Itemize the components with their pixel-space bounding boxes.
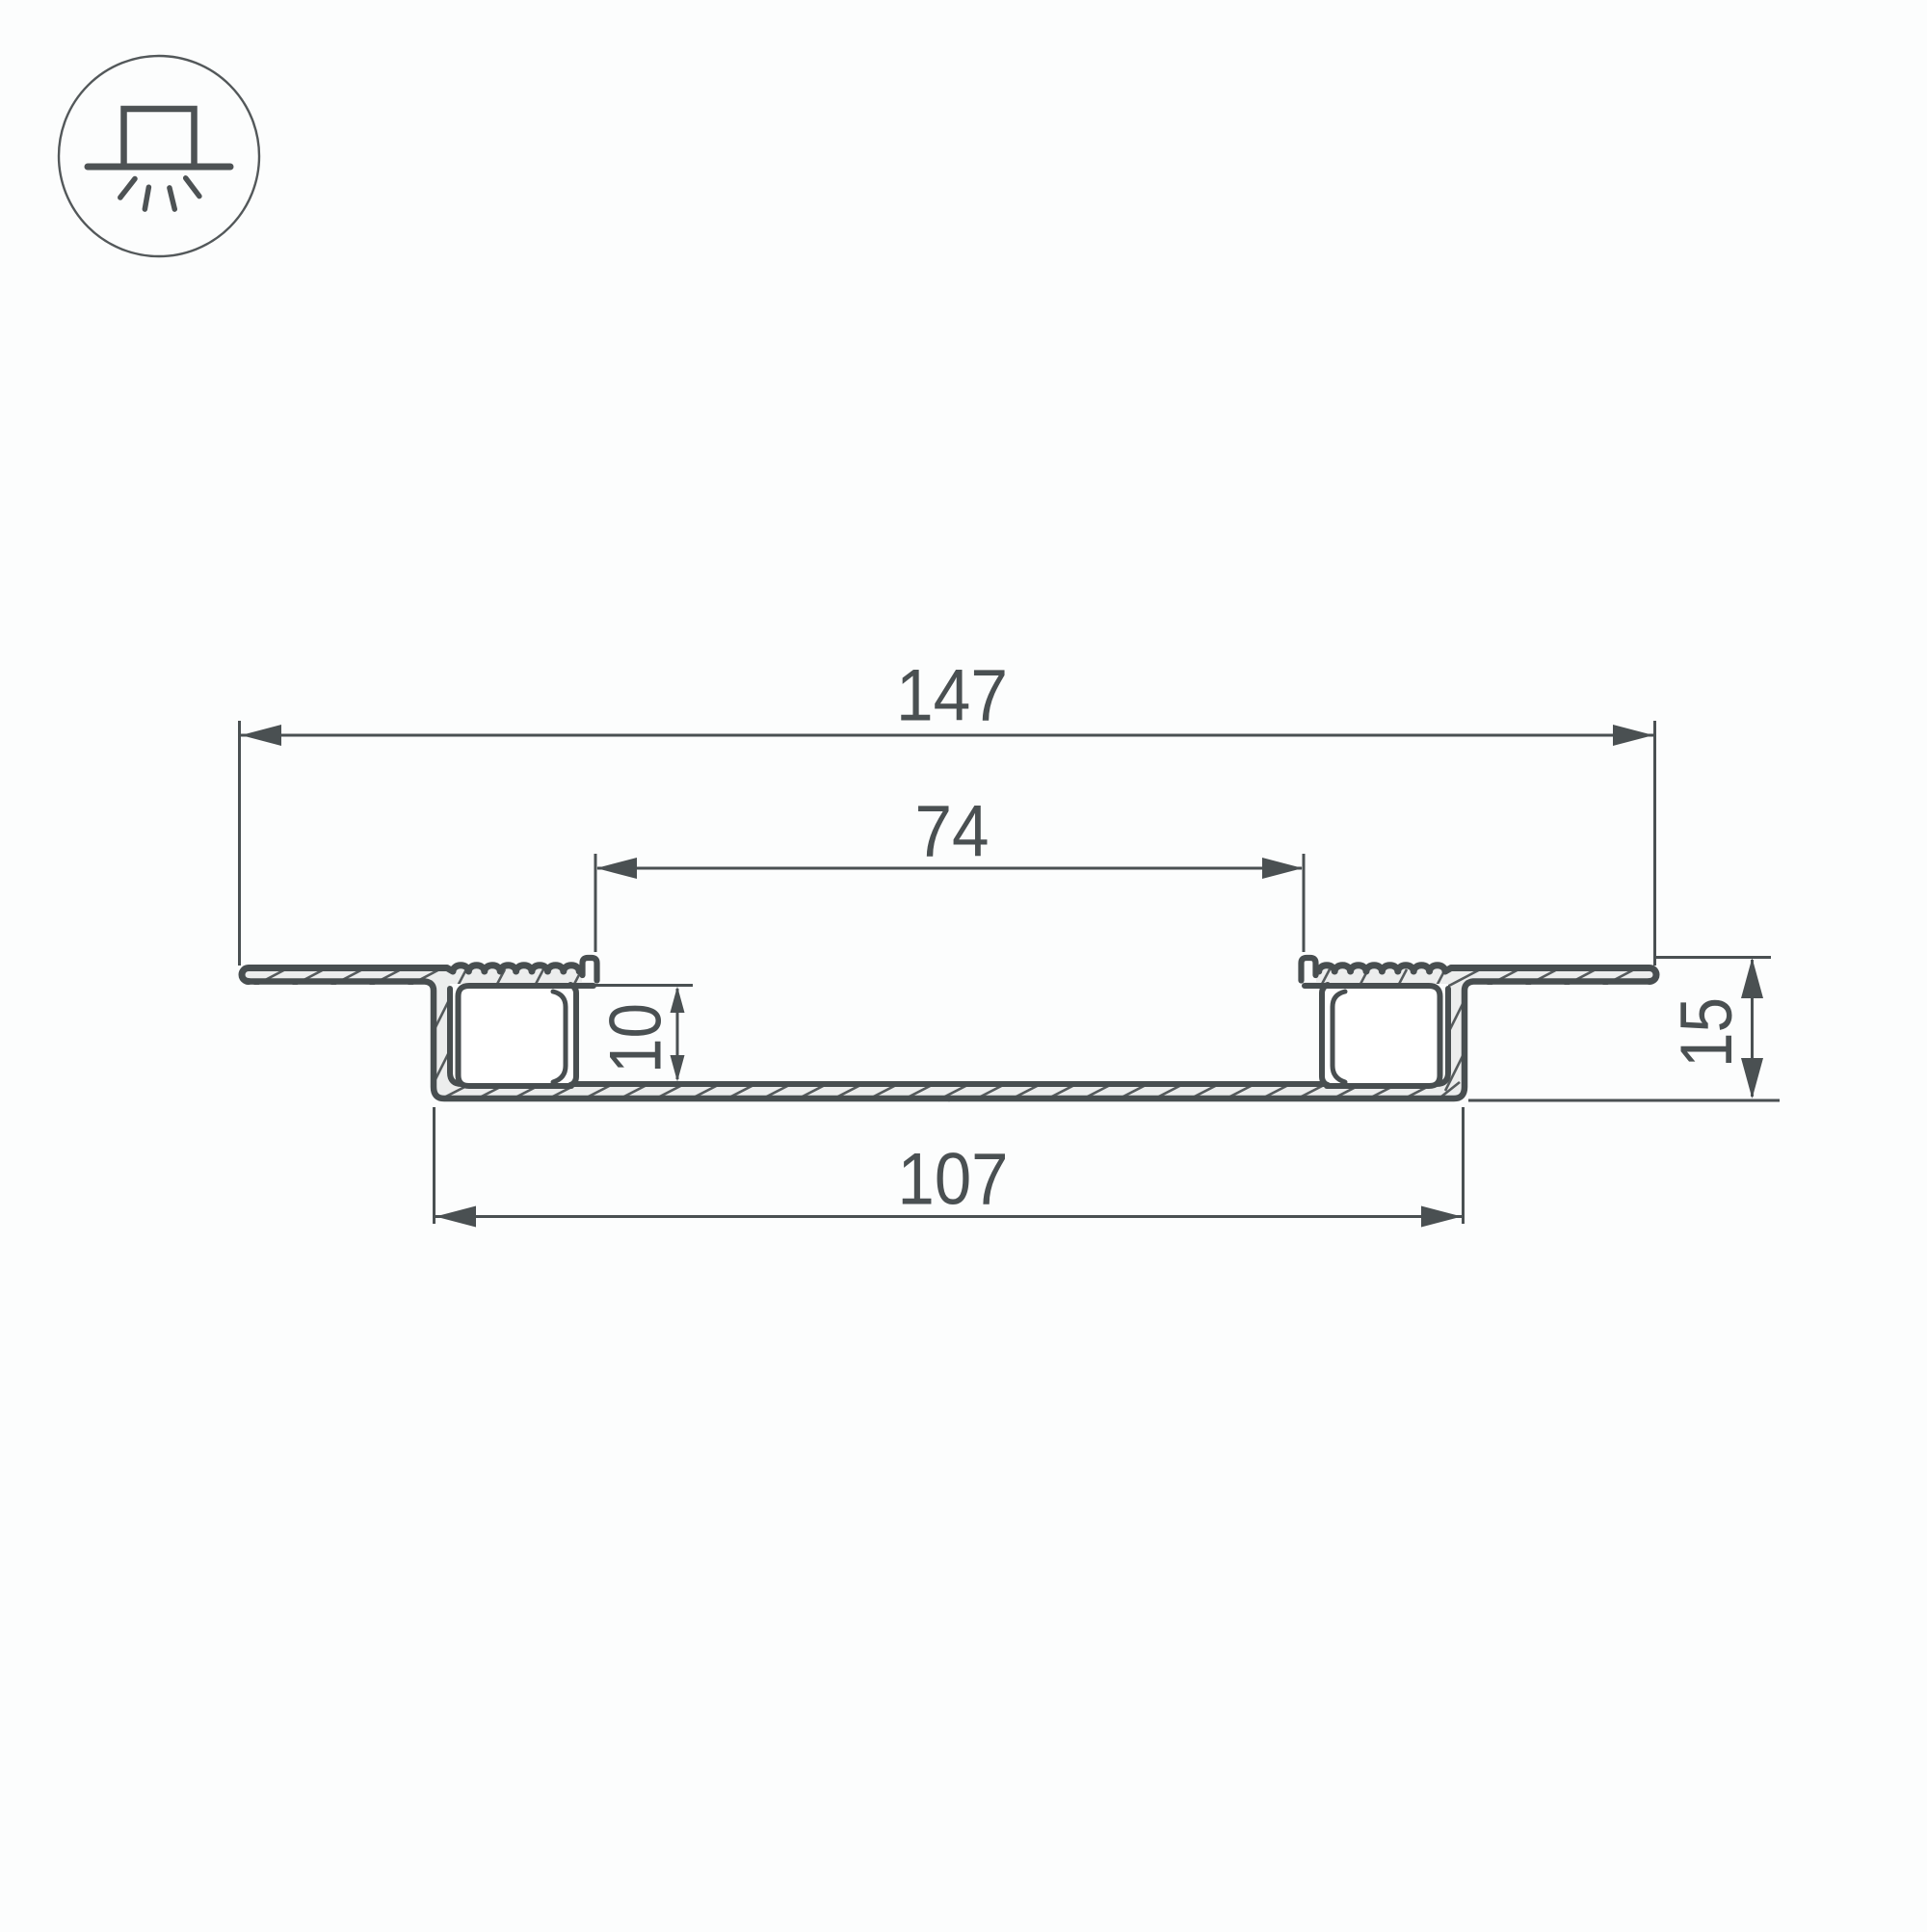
svg-text:74: 74 [915, 791, 990, 873]
svg-text:15: 15 [1666, 997, 1748, 1068]
svg-text:10: 10 [595, 1003, 677, 1073]
svg-text:107: 107 [898, 1139, 1009, 1221]
svg-text:147: 147 [896, 655, 1008, 737]
